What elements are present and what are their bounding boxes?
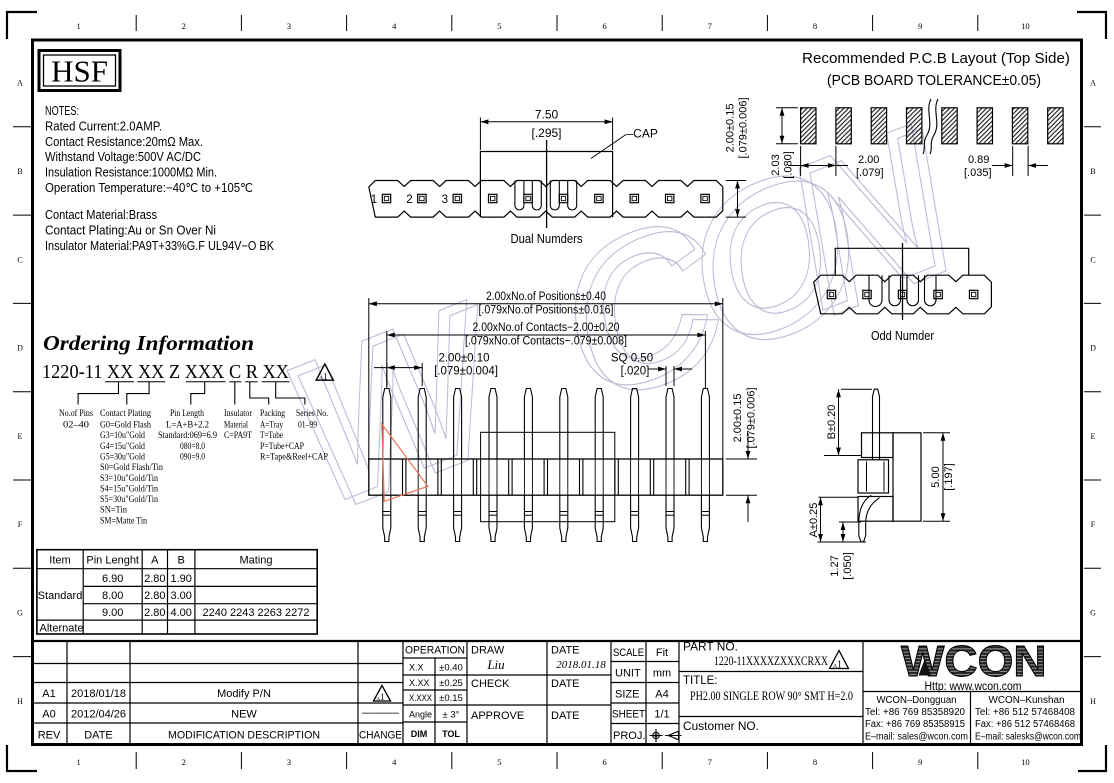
svg-text:[.050]: [.050] [842,552,854,580]
svg-text:Insulator Material:PA9T+33%G.F: Insulator Material:PA9T+33%G.F UL94V−O B… [45,239,275,253]
svg-text:Fax: +86 512 57468468: Fax: +86 512 57468468 [975,719,1076,730]
svg-text:01–99: 01–99 [298,421,317,431]
svg-text:MODIFICATION DESCRIPTION: MODIFICATION DESCRIPTION [168,730,320,742]
svg-text:9.00: 9.00 [102,607,123,619]
svg-text:TITLE:: TITLE: [683,675,718,687]
svg-text:2: 2 [182,21,186,31]
svg-text:A1: A1 [42,688,55,700]
svg-text:UNIT: UNIT [615,668,641,680]
svg-text:4.00: 4.00 [170,607,191,619]
svg-text:3: 3 [287,757,291,767]
svg-text:G3=10u"Gold: G3=10u"Gold [100,431,145,441]
svg-text:±0.25: ±0.25 [439,678,463,689]
svg-text:B: B [17,167,22,176]
svg-text:L=A+B+2.2: L=A+B+2.2 [166,421,209,431]
svg-text:[.079±0.006]: [.079±0.006] [746,387,758,448]
svg-text:0.89: 0.89 [968,154,989,166]
svg-text:2.80: 2.80 [144,607,165,619]
svg-text:2018/01/18: 2018/01/18 [71,688,126,700]
svg-text:Insulation Resistance:1000MΩ M: Insulation Resistance:1000MΩ Min. [45,166,217,180]
svg-text:Insulator: Insulator [224,409,253,419]
svg-text:Alternate: Alternate [40,623,84,635]
svg-text:(PCB BOARD TOLERANCE±0.05): (PCB BOARD TOLERANCE±0.05) [827,73,1041,89]
svg-text:S0=Gold Flash/Tin: S0=Gold Flash/Tin [100,463,163,473]
svg-text:10: 10 [1021,21,1030,31]
svg-text:A=Tray: A=Tray [260,421,283,431]
svg-text:E: E [1091,432,1096,441]
svg-text:A±0.25: A±0.25 [808,503,820,538]
svg-text:2240 2243 2263 2272: 2240 2243 2263 2272 [202,607,309,619]
svg-text:1: 1 [380,692,385,702]
svg-text:OPERATION: OPERATION [405,645,465,657]
svg-text:[.295]: [.295] [531,126,561,140]
svg-text:–CAP: –CAP [627,127,658,141]
svg-text:B±0.20: B±0.20 [826,405,838,440]
svg-text:PH2.00 SINGLE ROW 90° SMT H=2.: PH2.00 SINGLE ROW 90° SMT H=2.0 [690,689,853,703]
svg-text:6: 6 [602,757,606,767]
svg-text:No.of Pins: No.of Pins [59,408,93,419]
svg-text:6: 6 [602,21,606,31]
svg-text:±0.15: ±0.15 [439,693,463,704]
svg-text:PROJ.: PROJ. [613,730,645,742]
svg-text:[.197]: [.197] [943,463,955,491]
svg-text:APPROVE: APPROVE [471,710,524,722]
svg-text:D: D [1090,344,1096,353]
svg-text:A: A [1090,79,1096,88]
svg-text:S3=10u"Gold/Tin: S3=10u"Gold/Tin [100,474,158,484]
svg-text:Tel: +86 512 57468408: Tel: +86 512 57468408 [975,707,1076,718]
svg-text:A: A [833,663,838,670]
svg-text:A0: A0 [42,709,55,721]
svg-text:S4=15u"Gold/Tin: S4=15u"Gold/Tin [100,484,158,494]
svg-text:HSF: HSF [51,54,108,89]
svg-text:Contact Material:Brass: Contact Material:Brass [45,208,157,222]
svg-text:Mating: Mating [239,555,272,567]
svg-text:1220-11XXXXZXXXCRXX: 1220-11XXXXZXXXCRXX [714,654,828,668]
svg-text:Ordering Information: Ordering Information [43,331,254,355]
svg-text:G5=30u"Gold: G5=30u"Gold [100,452,145,462]
svg-text:8: 8 [813,757,817,767]
svg-text:X.X: X.X [409,663,424,673]
svg-text:PART NO.: PART NO. [683,642,738,654]
svg-text:C: C [17,255,22,264]
svg-text:WCON–Dongguan: WCON–Dongguan [877,695,957,706]
svg-text:Item: Item [49,555,70,567]
svg-text:[.079±0.006]: [.079±0.006] [738,97,750,158]
svg-text:Series No.: Series No. [296,409,328,419]
svg-text:± 3°: ± 3° [443,710,460,721]
svg-text:2.03: 2.03 [770,154,782,175]
svg-text:1.27: 1.27 [829,555,841,576]
svg-text:Customer NO.: Customer NO. [683,721,759,733]
svg-text:1: 1 [76,757,80,767]
svg-text:DATE: DATE [551,678,580,690]
svg-text:X.XXX: X.XXX [409,693,432,703]
svg-text:Rated Current:2.0AMP.: Rated Current:2.0AMP. [45,119,162,133]
svg-text:2.00±0.15: 2.00±0.15 [732,394,744,443]
svg-text:B: B [1090,167,1095,176]
svg-text:8: 8 [813,21,817,31]
svg-text:7.50: 7.50 [535,108,559,122]
svg-text:3: 3 [442,194,448,206]
svg-text:8.00: 8.00 [102,590,123,602]
svg-text:X.XX: X.XX [409,678,430,688]
svg-text:Withstand Voltage:500V AC/DC: Withstand Voltage:500V AC/DC [45,150,201,164]
svg-text:4: 4 [392,21,397,31]
svg-text:SQ 0.50: SQ 0.50 [611,353,653,365]
svg-text:Fax: +86 769 85358915: Fax: +86 769 85358915 [865,719,966,730]
svg-text:5: 5 [497,757,501,767]
svg-text:SCALE: SCALE [613,647,644,659]
svg-text:SM=Matte Tin: SM=Matte Tin [100,516,147,526]
svg-text:5.00: 5.00 [930,466,942,487]
svg-text:1: 1 [323,372,328,382]
svg-text:S5=30u"Gold/Tin: S5=30u"Gold/Tin [100,495,158,505]
svg-text:090=9.0: 090=9.0 [180,452,205,462]
svg-text:SN=Tin: SN=Tin [100,506,127,516]
svg-text:E–mail: sales@wcon.com: E–mail: sales@wcon.com [865,732,968,743]
svg-text:WCON–Kunshan: WCON–Kunshan [989,695,1065,706]
svg-text:Recommended P.C.B Layout (Top: Recommended P.C.B Layout (Top Side) [802,51,1070,67]
svg-text:Operation Temperature:−40℃ to: Operation Temperature:−40℃ to +105℃ [45,181,253,195]
svg-text:Contact Plating:Au or Sn Over: Contact Plating:Au or Sn Over Ni [45,223,216,237]
svg-text:5: 5 [497,21,501,31]
svg-text:A4: A4 [655,689,668,701]
svg-text:3.00: 3.00 [170,590,191,602]
svg-text:2.80: 2.80 [144,573,165,585]
svg-text:1: 1 [837,660,842,671]
svg-text:DATE: DATE [551,710,580,722]
svg-text:Odd Numder: Odd Numder [871,328,935,343]
svg-text:T=Tube: T=Tube [260,431,283,441]
svg-text:1/1: 1/1 [654,709,669,721]
svg-text:CHANGE: CHANGE [359,730,402,742]
svg-text:Standard:069=6.9: Standard:069=6.9 [158,431,217,441]
svg-text:A: A [17,79,23,88]
svg-text:NOTES:: NOTES: [45,104,79,118]
svg-text:1: 1 [371,194,377,206]
svg-text:REV: REV [38,730,61,742]
svg-text:[.020]: [.020] [621,366,650,378]
svg-text:Angle: Angle [409,710,432,720]
svg-text:Modify P/N: Modify P/N [217,688,271,700]
svg-text:2.00±0.15: 2.00±0.15 [725,104,737,153]
svg-text:10: 10 [1021,757,1030,767]
svg-text:TOL: TOL [442,729,460,739]
svg-text:6.90: 6.90 [102,573,123,585]
svg-text:SIZE: SIZE [615,689,639,701]
svg-text:Dual Numders: Dual Numders [511,231,583,246]
svg-text:[.035]: [.035] [964,167,992,179]
svg-text:NEW: NEW [231,709,257,721]
svg-text:B: B [178,555,185,567]
svg-text:2012/04/26: 2012/04/26 [71,709,126,721]
svg-text:DIM: DIM [411,729,428,739]
svg-text:Fit: Fit [656,647,668,659]
svg-text:D: D [17,344,23,353]
svg-text:[.079]: [.079] [856,167,884,179]
svg-text:Tel: +86 769 85358920: Tel: +86 769 85358920 [865,707,966,718]
svg-text:Contact Resistance:20mΩ Max.: Contact Resistance:20mΩ Max. [45,135,203,149]
svg-text:P=Tube+CAP: P=Tube+CAP [260,442,304,452]
svg-text:DATE: DATE [551,645,580,657]
svg-text:C=PA9T: C=PA9T [224,431,252,441]
svg-text:2.00xNo.of Positions±0.40: 2.00xNo.of Positions±0.40 [486,291,606,303]
svg-text:CHECK: CHECK [471,678,510,690]
svg-text:F: F [1091,520,1096,529]
svg-text:3: 3 [287,21,291,31]
svg-text:G: G [1090,608,1096,617]
svg-text:Packing: Packing [260,409,285,419]
svg-text:[.079±0.004]: [.079±0.004] [434,366,498,378]
svg-text:R=Tape&Reel+CAP: R=Tape&Reel+CAP [260,452,328,462]
svg-text:Http: www.wcon.com: Http: www.wcon.com [925,681,1022,693]
svg-text:4: 4 [392,757,397,767]
svg-text:7: 7 [708,757,712,767]
svg-text:1220-11 XX XX Z XXX C R XX: 1220-11 XX XX Z XXX C R XX [42,361,290,383]
svg-text:2.00±0.10: 2.00±0.10 [438,353,489,365]
svg-text:G4=15u"Gold: G4=15u"Gold [100,442,145,452]
svg-text:Standard: Standard [38,590,83,602]
svg-text:2: 2 [182,757,186,767]
svg-text:[.079xNo.of Contacts−.079±0.00: [.079xNo.of Contacts−.079±0.008] [465,336,627,348]
svg-text:9: 9 [918,21,922,31]
svg-text:SHEET: SHEET [612,709,645,721]
svg-text:2.80: 2.80 [144,590,165,602]
svg-text:DATE: DATE [84,730,113,742]
svg-text:mm: mm [653,668,671,680]
svg-text:02–40: 02–40 [63,421,89,431]
svg-text:F: F [18,520,23,529]
svg-text:A: A [151,555,159,567]
svg-text:2018.01.18: 2018.01.18 [556,659,606,671]
svg-text:H: H [17,697,23,706]
svg-text:1: 1 [76,21,80,31]
svg-text:WCON: WCON [901,636,1047,686]
svg-text:E–mail: salesks@wcon.com: E–mail: salesks@wcon.com [975,732,1081,743]
svg-text:E: E [18,432,23,441]
svg-text:1.90: 1.90 [170,573,191,585]
svg-text:A: A [319,376,324,382]
svg-text:A: A [376,697,381,703]
svg-text:Liu: Liu [486,657,505,672]
svg-text:H: H [1090,697,1096,706]
svg-text:±0.40: ±0.40 [439,663,463,674]
svg-text:Pin Lenght: Pin Lenght [86,555,139,567]
svg-text:2.00xNo.of Contacts−2.00±0.20: 2.00xNo.of Contacts−2.00±0.20 [473,322,620,334]
svg-text:2.00: 2.00 [858,154,879,166]
svg-text:DRAW: DRAW [471,645,505,657]
svg-text:7: 7 [708,21,712,31]
svg-text:C: C [1090,255,1095,264]
svg-text:G0=Gold Flash: G0=Gold Flash [100,421,151,431]
svg-text:‒‒‒‒‒‒: ‒‒‒‒‒‒ [362,707,400,719]
svg-text:2: 2 [406,194,412,206]
svg-text:G: G [17,608,23,617]
svg-text:080=8.0: 080=8.0 [180,442,205,452]
svg-text:Material: Material [224,421,248,431]
svg-text:Pin Length: Pin Length [170,409,204,419]
svg-text:Contact Plating: Contact Plating [100,409,151,419]
svg-text:9: 9 [918,757,922,767]
svg-text:[.079xNo.of Positions±0.016]: [.079xNo.of Positions±0.016] [479,305,614,317]
